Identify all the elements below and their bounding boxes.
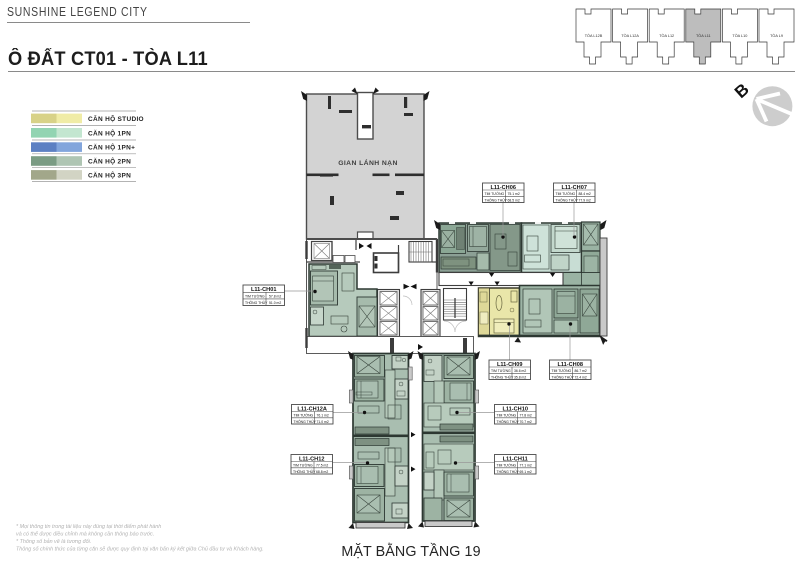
svg-text:TIM TƯỜNG: TIM TƯỜNG <box>491 368 511 373</box>
svg-text:77.5 m2: 77.5 m2 <box>316 464 328 468</box>
svg-text:L11-CH12A: L11-CH12A <box>297 407 327 413</box>
svg-text:L11-CH12: L11-CH12 <box>299 457 325 463</box>
svg-text:và có thể được điều chỉnh mà k: và có thể được điều chỉnh mà không cần t… <box>16 531 154 538</box>
svg-text:TÒA L12A: TÒA L12A <box>621 33 639 38</box>
svg-text:72.4 m2: 72.4 m2 <box>575 376 587 380</box>
svg-text:Thông số chính thức của từng c: Thông số chính thức của từng căn sẽ được… <box>16 546 264 553</box>
svg-text:TIM TƯỜNG: TIM TƯỜNG <box>293 463 313 468</box>
svg-text:L11-CH07: L11-CH07 <box>561 185 587 191</box>
svg-text:TIM TƯỜNG: TIM TƯỜNG <box>497 463 517 468</box>
svg-text:THÔNG THỦY: THÔNG THỦY <box>497 419 520 424</box>
svg-text:TIM TƯỜNG: TIM TƯỜNG <box>245 294 265 299</box>
svg-text:THÔNG THỦY: THÔNG THỦY <box>497 469 520 474</box>
svg-text:GIAN LÁNH NẠN: GIAN LÁNH NẠN <box>338 158 398 167</box>
svg-text:L11-CH06: L11-CH06 <box>490 185 516 191</box>
svg-text:* Thông số bản vẽ là tương đối: * Thông số bản vẽ là tương đối. <box>16 538 91 545</box>
svg-text:TÒA L9: TÒA L9 <box>770 33 783 38</box>
svg-text:L11-CH08: L11-CH08 <box>557 362 583 368</box>
svg-text:75.1 m2: 75.1 m2 <box>508 192 520 196</box>
svg-text:71.0 m2: 71.0 m2 <box>317 420 329 424</box>
svg-text:THÔNG THỦY: THÔNG THỦY <box>245 300 268 305</box>
svg-text:TÒA L10: TÒA L10 <box>732 33 747 38</box>
svg-text:TIM TƯỜNG: TIM TƯỜNG <box>497 413 517 418</box>
svg-text:L11-CH01: L11-CH01 <box>251 287 277 293</box>
svg-text:68.8 m2: 68.8 m2 <box>316 470 328 474</box>
svg-text:57.8 m2: 57.8 m2 <box>269 295 281 299</box>
svg-text:TIM TƯỜNG: TIM TƯỜNG <box>485 191 505 196</box>
svg-text:THÔNG THỦY: THÔNG THỦY <box>556 198 579 203</box>
svg-text:TÒA L11: TÒA L11 <box>696 33 711 38</box>
svg-text:B: B <box>731 80 753 102</box>
svg-text:TÒA L12: TÒA L12 <box>659 33 674 38</box>
svg-text:CĂN HỘ 1PN: CĂN HỘ 1PN <box>88 128 131 137</box>
svg-text:THÔNG THỦY: THÔNG THỦY <box>485 198 508 203</box>
svg-text:36.6 m2: 36.6 m2 <box>514 369 526 373</box>
svg-text:51.0 m2: 51.0 m2 <box>269 301 281 305</box>
svg-text:35.8 m2: 35.8 m2 <box>514 376 526 380</box>
svg-text:L11-CH10: L11-CH10 <box>502 407 528 413</box>
svg-text:68.5 m2: 68.5 m2 <box>508 199 520 203</box>
svg-text:TIM TƯỜNG: TIM TƯỜNG <box>294 413 314 418</box>
svg-text:76.1 m2: 76.1 m2 <box>317 414 329 418</box>
svg-text:THÔNG THỦY: THÔNG THỦY <box>552 375 575 380</box>
svg-text:86.7 m2: 86.7 m2 <box>575 369 587 373</box>
svg-text:THÔNG THỦY: THÔNG THỦY <box>294 419 317 424</box>
svg-text:MẶT BẰNG TẦNG 19: MẶT BẰNG TẦNG 19 <box>341 542 480 560</box>
svg-text:CĂN HỘ 2PN: CĂN HỘ 2PN <box>88 157 131 166</box>
svg-text:88.4 m2: 88.4 m2 <box>579 192 591 196</box>
svg-text:77.8 m2: 77.8 m2 <box>520 414 532 418</box>
svg-text:CĂN HỘ 1PN+: CĂN HỘ 1PN+ <box>88 143 135 152</box>
svg-text:69.1 m2: 69.1 m2 <box>520 470 532 474</box>
svg-text:TIM TƯỜNG: TIM TƯỜNG <box>556 191 576 196</box>
svg-text:77.1 m2: 77.1 m2 <box>520 464 532 468</box>
svg-text:TÒA L12B: TÒA L12B <box>585 33 603 38</box>
svg-text:L11-CH09: L11-CH09 <box>497 362 523 368</box>
svg-text:TIM TƯỜNG: TIM TƯỜNG <box>552 368 572 373</box>
svg-text:THÔNG THỦY: THÔNG THỦY <box>293 469 316 474</box>
svg-text:77.9 m2: 77.9 m2 <box>579 199 591 203</box>
svg-text:CĂN HỘ STUDIO: CĂN HỘ STUDIO <box>88 114 144 123</box>
svg-text:L11-CH11: L11-CH11 <box>503 457 528 463</box>
svg-text:70.7 m2: 70.7 m2 <box>520 420 532 424</box>
svg-text:CĂN HỘ 3PN: CĂN HỘ 3PN <box>88 171 131 180</box>
svg-text:THÔNG THỦY: THÔNG THỦY <box>491 375 514 380</box>
svg-text:* Mọi thông tin trong tài liệu: * Mọi thông tin trong tài liệu này đúng … <box>16 523 161 530</box>
